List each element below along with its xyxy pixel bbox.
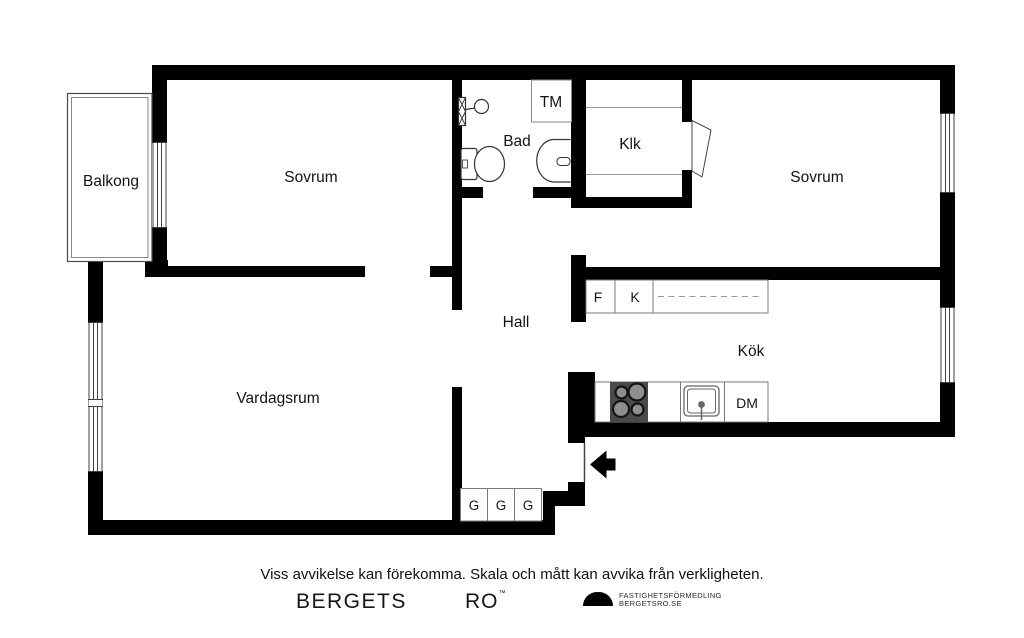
shower-head — [475, 100, 489, 114]
room-label-living-room: Vardagsrum — [236, 390, 319, 407]
wall-segment — [152, 65, 167, 142]
room-label-hall: Hall — [503, 314, 530, 331]
room-label-bathroom: Bad — [503, 133, 531, 150]
wall-segment — [152, 65, 955, 80]
wall-segment — [585, 422, 955, 437]
room-label-bedroom-left: Sovrum — [284, 169, 337, 186]
wall-segment — [88, 520, 555, 535]
label-wardrobe: G — [469, 498, 480, 513]
wall-segment — [452, 187, 483, 198]
wall-segment — [568, 372, 595, 422]
shower-icon — [459, 98, 489, 126]
wall-segment — [145, 266, 365, 277]
wall-segment — [152, 228, 167, 262]
window-glass — [152, 142, 167, 228]
floor-plan: Balkong Sovrum Bad Klk Sovrum Hall Kök V… — [0, 0, 1024, 638]
kitchen-window — [940, 307, 955, 383]
living-room-window — [88, 322, 103, 472]
toilet-bowl — [475, 147, 505, 182]
kitchen-upper-counter — [586, 280, 768, 313]
disclaimer-text: Viss avvikelse kan förekomma. Skala och … — [0, 566, 1024, 583]
window-glass — [940, 307, 955, 383]
floor-plan-drawing: Balkong Sovrum Bad Klk Sovrum Hall Kök V… — [0, 0, 1024, 638]
wall-segment — [571, 65, 586, 208]
room-label-kitchen: Kök — [738, 343, 765, 360]
wall-segment — [578, 267, 940, 280]
wall-segment — [571, 197, 692, 208]
wall-segment — [940, 65, 955, 113]
brand-word-ro: RO™ — [465, 590, 506, 614]
wall-segment — [533, 187, 572, 198]
toilet-flush-button — [463, 160, 468, 168]
window-mullion — [89, 399, 102, 407]
label-wardrobe: G — [496, 498, 507, 513]
label-dishwasher: DM — [736, 395, 758, 411]
wall-segment — [682, 170, 692, 207]
brand-tagline: FASTIGHETSFÖRMEDLING BERGETSRO.SE — [619, 592, 722, 608]
stove-burner — [616, 387, 628, 399]
wall-segment — [682, 80, 692, 122]
brand-word-bergets: BERGETS — [296, 590, 407, 614]
wall-segment — [88, 472, 103, 523]
kitchen-sink-icon — [684, 386, 719, 420]
room-label-balcony: Balkong — [83, 173, 139, 190]
shower-arm — [466, 108, 476, 110]
closet-door-leaf-icon — [692, 121, 711, 178]
bedroom-right-window — [940, 113, 955, 193]
stove-burner — [629, 384, 646, 401]
label-wardrobe: G — [523, 498, 534, 513]
label-fridge: F — [594, 289, 603, 305]
stove-icon — [610, 382, 648, 422]
stove-burner — [613, 401, 629, 417]
wall-segment — [88, 260, 103, 322]
counter-outline — [586, 280, 768, 313]
label-freezer: K — [630, 289, 640, 305]
window-glass — [88, 322, 103, 472]
trademark-symbol: ™ — [499, 590, 506, 597]
washbasin-icon — [537, 140, 571, 183]
room-label-closet: Klk — [619, 136, 641, 153]
wall-segment — [940, 193, 955, 307]
window-glass — [940, 113, 955, 193]
wall-segment — [568, 422, 585, 443]
balcony-door-window — [152, 142, 167, 228]
toilet-icon — [461, 147, 505, 182]
wall-segment — [571, 255, 586, 322]
shower-valve — [459, 98, 466, 126]
brand-word-ro-text: RO — [465, 590, 499, 613]
stove-burner — [632, 404, 644, 416]
entrance-arrow-icon — [590, 451, 616, 479]
room-label-bedroom-right: Sovrum — [790, 169, 843, 186]
label-washing-machine: TM — [540, 94, 562, 111]
washbasin-tap — [557, 158, 570, 166]
brand-tagline-line2: BERGETSRO.SE — [619, 600, 722, 608]
